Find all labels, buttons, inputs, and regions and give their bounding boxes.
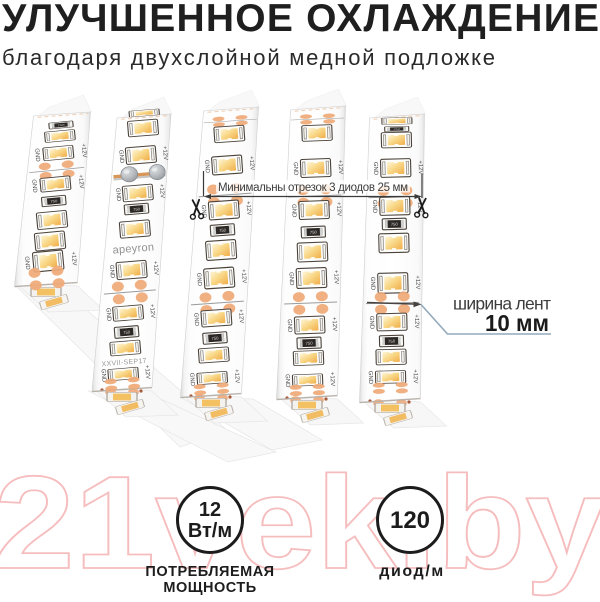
- svg-text:21vek.by: 21vek.by: [0, 449, 600, 596]
- svg-text:750: 750: [393, 128, 400, 130]
- svg-text:МОЩНОСТЬ: МОЩНОСТЬ: [163, 580, 256, 596]
- svg-text:GND: GND: [114, 188, 121, 202]
- svg-text:GND: GND: [284, 374, 291, 388]
- svg-text:750: 750: [388, 339, 396, 344]
- svg-text:GND: GND: [290, 204, 297, 218]
- svg-text:+12V: +12V: [417, 160, 423, 174]
- svg-text:+12V: +12V: [148, 304, 155, 319]
- svg-text:+12V: +12V: [161, 146, 168, 161]
- svg-text:GND: GND: [292, 162, 299, 176]
- svg-text:благодаря двухслойной медной п: благодаря двухслойной медной подложке: [2, 45, 495, 70]
- svg-text:GND: GND: [369, 277, 375, 291]
- svg-text:GND: GND: [117, 150, 124, 164]
- svg-text:GND: GND: [372, 162, 378, 176]
- svg-text:10 мм: 10 мм: [485, 310, 549, 336]
- svg-text:GND: GND: [108, 265, 115, 279]
- svg-text:+12V: +12V: [414, 275, 420, 289]
- svg-text:+12V: +12V: [412, 369, 418, 383]
- svg-text:+12V: +12V: [335, 202, 342, 216]
- svg-text:750: 750: [50, 198, 57, 203]
- svg-text:750: 750: [219, 227, 227, 233]
- svg-text:GND: GND: [188, 373, 195, 387]
- svg-text:750: 750: [211, 335, 219, 341]
- svg-text:GND: GND: [368, 316, 374, 330]
- svg-text:Вт/м: Вт/м: [188, 520, 232, 542]
- svg-text:+12V: +12V: [237, 309, 244, 324]
- svg-text:ПОТРЕБЛЯЕМАЯ: ПОТРЕБЛЯЕМАЯ: [145, 564, 274, 580]
- svg-text:+12V: +12V: [233, 369, 240, 384]
- svg-text:750: 750: [133, 206, 141, 211]
- svg-text:Минимальны отрезок 3 диодов 25: Минимальны отрезок 3 диодов 25 мм: [218, 182, 408, 194]
- svg-text:+12V: +12V: [158, 184, 165, 199]
- svg-text:GND: GND: [367, 371, 373, 385]
- svg-text:+12V: +12V: [413, 314, 419, 328]
- svg-text:750: 750: [306, 341, 314, 346]
- svg-text:УЛУЧШЕННОЕ ОХЛАЖДЕНИЕ: УЛУЧШЕННОЕ ОХЛАЖДЕНИЕ: [2, 0, 599, 40]
- svg-text:12: 12: [199, 499, 221, 521]
- svg-text:750: 750: [310, 230, 318, 235]
- svg-text:GND: GND: [192, 313, 199, 327]
- svg-text:GND: GND: [195, 273, 202, 287]
- svg-text:750: 750: [391, 222, 399, 227]
- svg-text:+12V: +12V: [143, 365, 150, 380]
- svg-text:GND: GND: [371, 200, 377, 214]
- svg-text:диод/м: диод/м: [379, 563, 445, 580]
- svg-text:+12V: +12V: [240, 269, 247, 284]
- svg-text:+12V: +12V: [337, 160, 344, 174]
- svg-text:+12V: +12V: [332, 270, 339, 284]
- svg-text:750: 750: [123, 329, 131, 335]
- svg-text:GND: GND: [288, 272, 295, 286]
- svg-text:+12V: +12V: [331, 317, 338, 331]
- svg-text:GND: GND: [286, 319, 293, 333]
- svg-text:120: 120: [390, 507, 430, 534]
- svg-text:+12V: +12V: [248, 156, 255, 171]
- svg-text:+12V: +12V: [152, 261, 159, 276]
- svg-text:+12V: +12V: [329, 372, 336, 386]
- svg-text:GND: GND: [104, 308, 111, 322]
- svg-text:+12V: +12V: [245, 201, 252, 216]
